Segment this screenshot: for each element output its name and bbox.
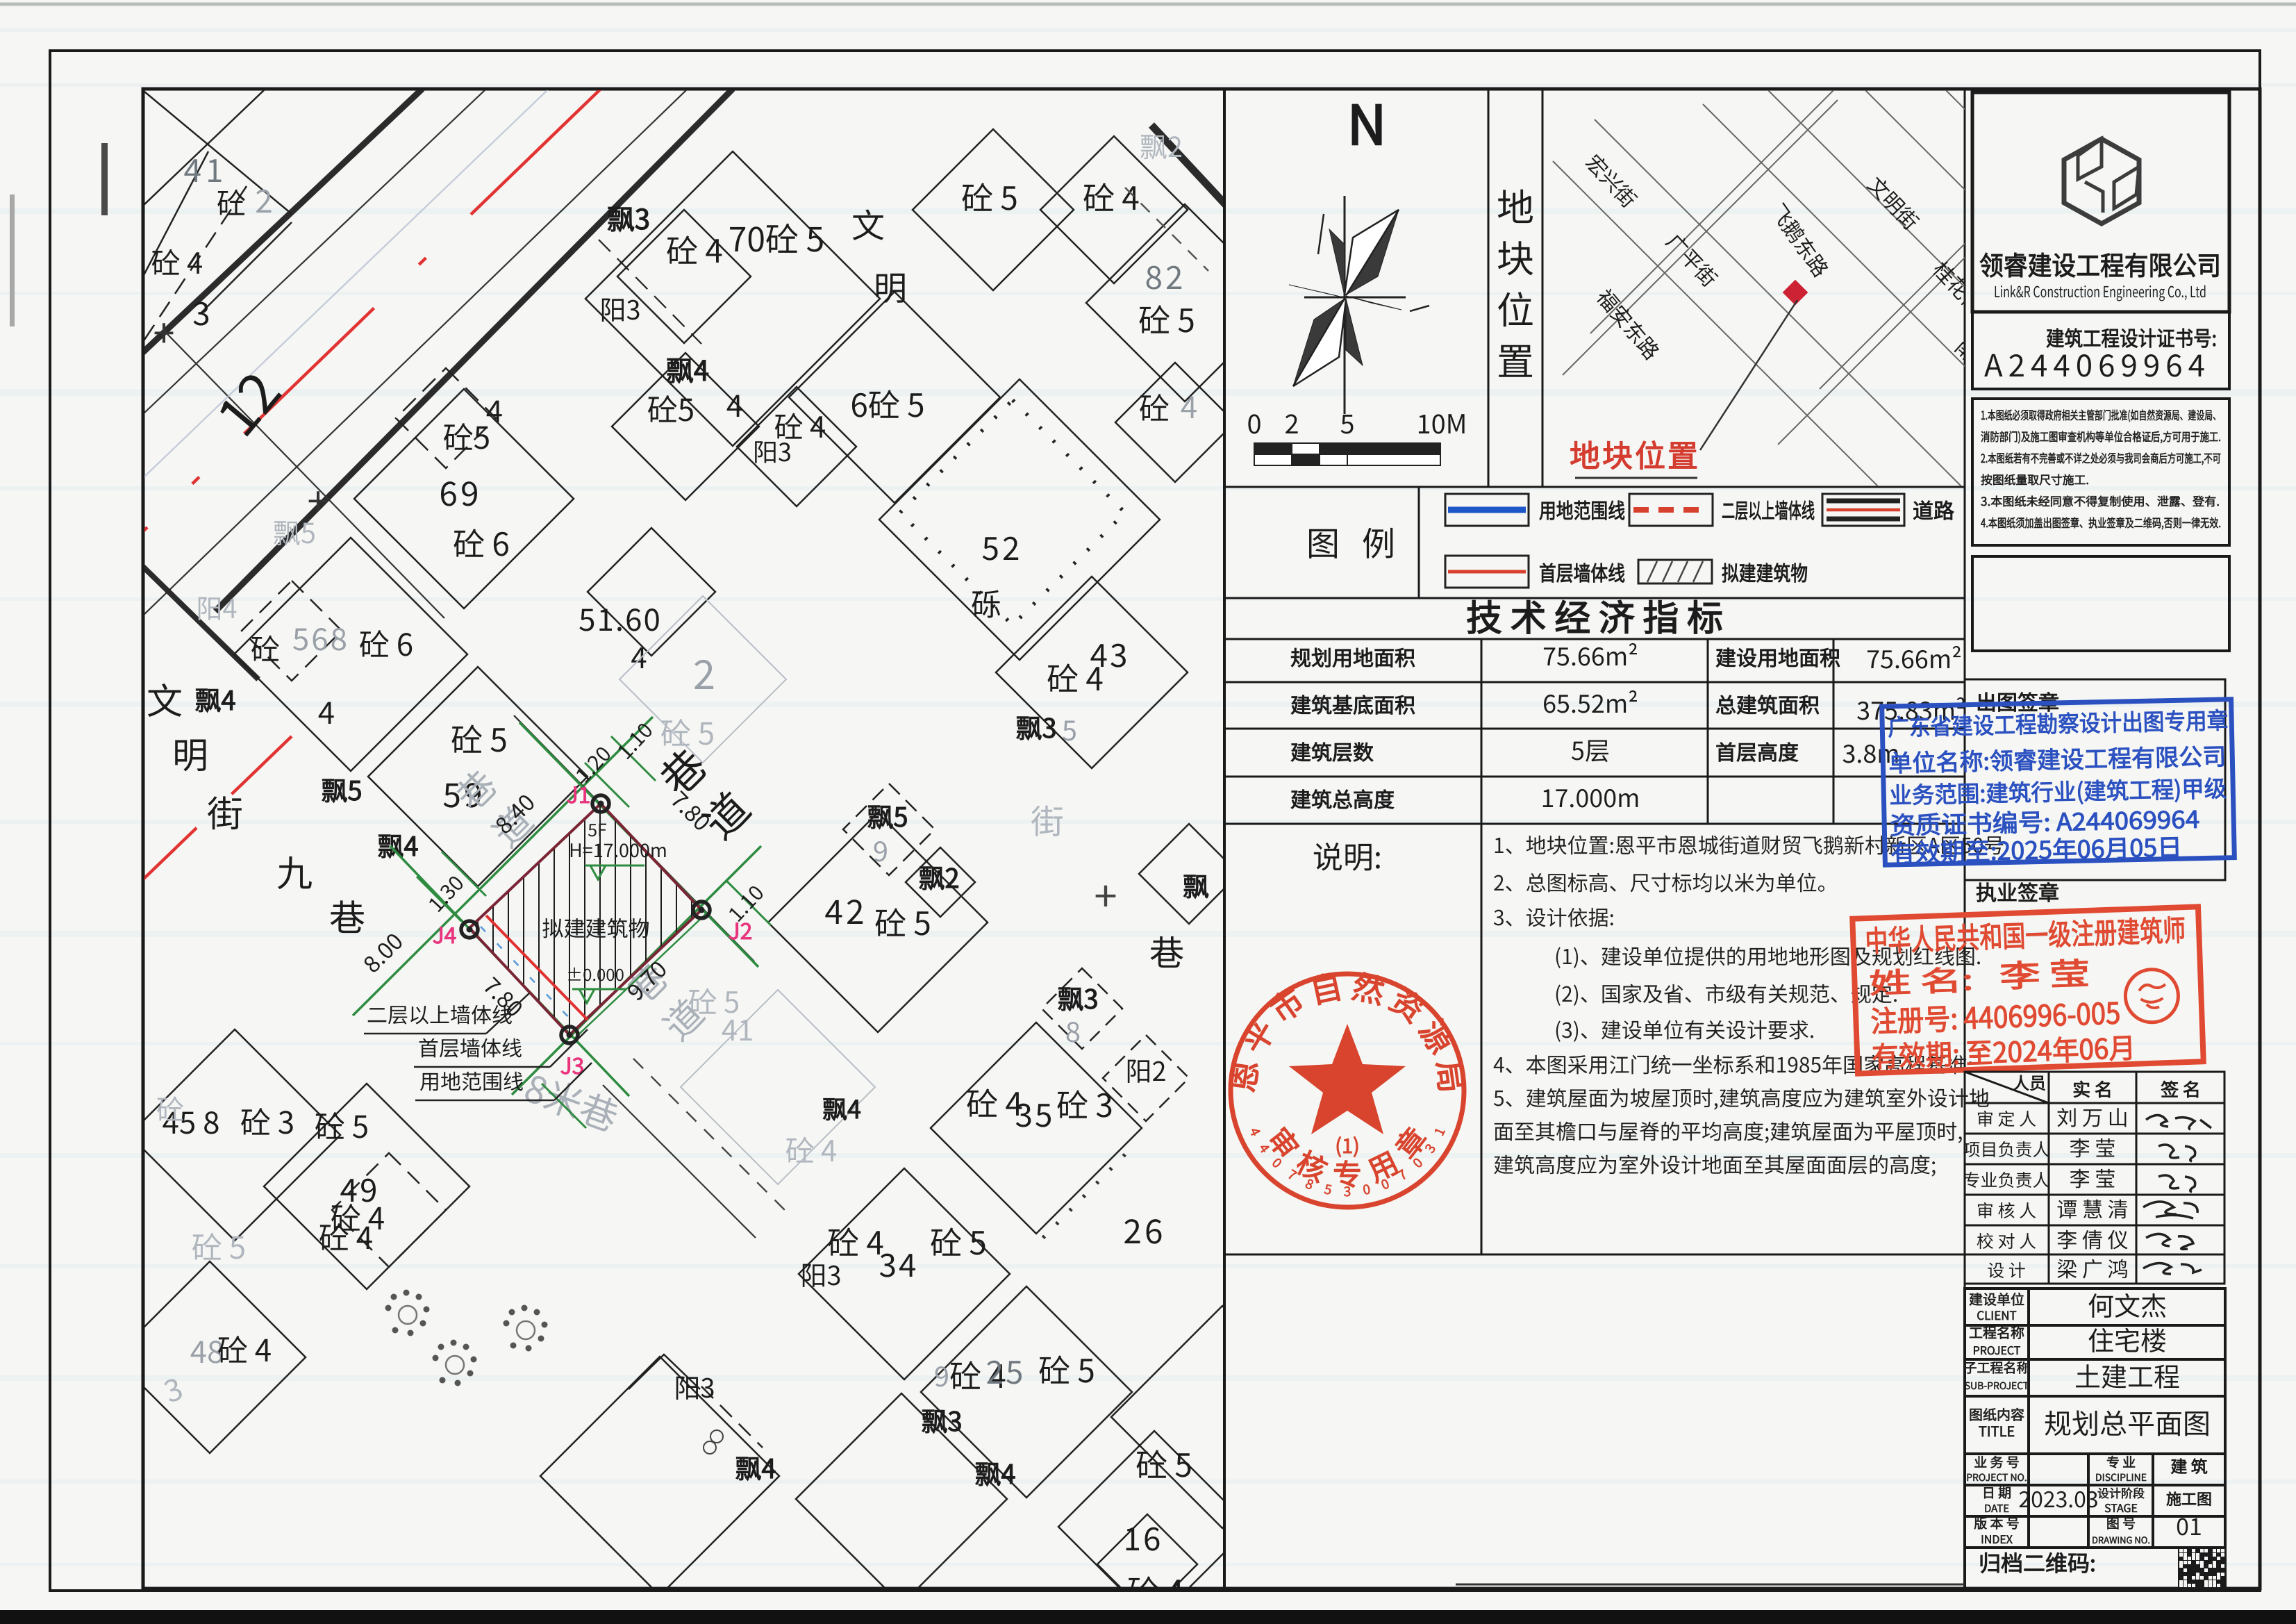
svg-text:砼: 砼 [217,181,246,223]
svg-text:2.本图纸若有不完善或不详之处必须与我司会商后方可施工,不可: 2.本图纸若有不完善或不详之处必须与我司会商后方可施工,不可 [1981,449,2221,466]
svg-text:砼 5: 砼 5 [1135,1441,1192,1486]
svg-text:8: 8 [1065,1010,1081,1050]
svg-text:规划总平面图: 规划总平面图 [2044,1402,2211,1442]
svg-text:SUB-PROJECT: SUB-PROJECT [1965,1379,2029,1393]
svg-text:51.60: 51.60 [579,595,662,640]
svg-text:飘2: 飘2 [918,857,959,895]
svg-text:26: 26 [1123,1204,1165,1253]
svg-text:广东省建设工程勘察设计出图专用章: 广东省建设工程勘察设计出图专用章 [1888,702,2229,743]
svg-text:砼 5: 砼 5 [192,1223,246,1268]
svg-text:置: 置 [1497,331,1534,386]
svg-text:65.52m²: 65.52m² [1542,684,1638,720]
svg-text:人员: 人员 [2013,1070,2046,1094]
svg-text:审 核 人: 审 核 人 [1977,1198,2036,1223]
svg-text:砼 4: 砼 4 [319,1213,373,1258]
svg-text:16: 16 [1124,1514,1163,1560]
svg-text:业 务 号: 业 务 号 [1974,1452,2019,1471]
svg-text:4: 4 [1181,383,1197,427]
svg-text:建设用地面积: 建设用地面积 [1715,641,1840,672]
svg-text:面至其檐口与屋脊的平均高度;建筑屋面为平屋顶时,: 面至其檐口与屋脊的平均高度;建筑屋面为平屋顶时, [1493,1115,1963,1145]
svg-text:砼 5: 砼 5 [660,709,715,754]
svg-text:4: 4 [318,688,335,733]
svg-text:Link&R Construction Engineerin: Link&R Construction Engineering Co., Ltd [1994,280,2206,302]
svg-text:N: N [1347,83,1386,160]
svg-text:砼 4: 砼 4 [785,1128,838,1170]
svg-text:(3)、建设单位有关设计要求.: (3)、建设单位有关设计要求. [1554,1013,1815,1044]
svg-text:82: 82 [1145,253,1186,299]
svg-text:42: 42 [824,885,867,934]
svg-text:巷: 巷 [1149,926,1184,976]
svg-text:砼 5: 砼 5 [1138,296,1195,342]
svg-text:领睿建设工程有限公司: 领睿建设工程有限公司 [1979,245,2221,283]
svg-text:飘5: 飘5 [867,796,908,834]
svg-text:建筑层数: 建筑层数 [1290,736,1374,766]
svg-text:首层墙体线: 首层墙体线 [1539,556,1625,587]
svg-text:3: 3 [1344,1182,1351,1200]
svg-text:DISCIPLINE: DISCIPLINE [2095,1470,2147,1484]
svg-text:块: 块 [1497,229,1534,283]
svg-text:砼 5: 砼 5 [930,1218,987,1264]
svg-text:首层高度: 首层高度 [1715,736,1799,766]
svg-text:2023.03: 2023.03 [2018,1482,2098,1514]
svg-text:砼 4: 砼 4 [151,240,203,283]
svg-text:0: 0 [1247,403,1261,441]
svg-text:说明:: 说明: [1313,833,1382,877]
svg-text:飘4: 飘4 [822,1090,861,1126]
svg-text:工程名称: 工程名称 [1969,1322,2024,1342]
svg-text:砾: 砾 [971,580,1001,624]
svg-text:街: 街 [1031,795,1064,843]
svg-text:飘3: 飘3 [1015,707,1056,745]
svg-text:版 本 号: 版 本 号 [1974,1514,2019,1532]
svg-text:住宅楼: 住宅楼 [2088,1320,2167,1358]
svg-text:建筑基底面积: 建筑基底面积 [1290,688,1415,719]
svg-text:CLIENT: CLIENT [1977,1306,2016,1323]
svg-text:建筑总高度: 建筑总高度 [1290,783,1395,813]
svg-text:飘4: 飘4 [194,679,235,718]
svg-text:6砼 5: 6砼 5 [850,381,924,426]
svg-text:巷: 巷 [329,889,365,941]
svg-text:砼 5: 砼 5 [451,715,508,761]
svg-text:校 对 人: 校 对 人 [1977,1228,2036,1253]
svg-text:街: 街 [207,785,243,837]
svg-text:±0.000: ±0.000 [566,961,624,986]
svg-text:局: 局 [1427,1057,1477,1095]
svg-text:41: 41 [722,1007,754,1050]
svg-text:谭 慧 清: 谭 慧 清 [2056,1193,2128,1223]
svg-text:17.000m: 17.000m [1541,779,1640,815]
svg-text:砼 5: 砼 5 [961,174,1018,219]
svg-text:地: 地 [1497,177,1534,232]
svg-text:技 术 经 济 指 标: 技 术 经 济 指 标 [1466,589,1723,641]
svg-text:用地范围线: 用地范围线 [419,1065,524,1095]
svg-text:归档二维码:: 归档二维码: [1979,1546,2096,1578]
svg-text:日 期: 日 期 [1982,1483,2011,1502]
svg-text:实 名: 实 名 [2072,1076,2113,1102]
svg-text:有效期至:2025年06月05日: 有效期至:2025年06月05日 [1890,828,2183,870]
svg-text:施工图: 施工图 [2166,1487,2212,1509]
svg-text:TITLE: TITLE [1979,1420,2015,1441]
svg-text:J4: J4 [433,918,457,950]
svg-text:3: 3 [192,289,210,335]
svg-text:设 计: 设 计 [1987,1257,2026,1282]
svg-text:9: 9 [934,1354,949,1395]
svg-text:PROJECT: PROJECT [1973,1341,2021,1358]
svg-text:4.本图纸须加盖出图签章、执业签章及二维码,否则一律无效.: 4.本图纸须加盖出图签章、执业签章及二维码,否则一律无效. [1981,513,2221,531]
svg-text:用地范围线: 用地范围线 [1539,494,1625,524]
svg-text:3、设计依据:: 3、设计依据: [1493,901,1615,931]
svg-text:恩: 恩 [1217,1057,1267,1095]
svg-text:34: 34 [879,1241,919,1286]
svg-text:总建筑面积: 总建筑面积 [1715,688,1820,719]
svg-text:砼: 砼 [1139,384,1170,429]
svg-text:二层以上墙体线: 二层以上墙体线 [1722,494,1815,524]
svg-text:专 业: 专 业 [2106,1452,2136,1471]
svg-text:明: 明 [172,727,208,779]
svg-text:飘5: 飘5 [273,511,316,552]
svg-text:执业签章: 执业签章 [1976,876,2059,906]
svg-text:建 筑: 建 筑 [2170,1453,2207,1477]
svg-text:2: 2 [255,176,272,222]
svg-text:4: 4 [631,635,647,677]
svg-text:43: 43 [1090,631,1130,677]
svg-text:砼: 砼 [251,627,280,669]
svg-text:子工程名称: 子工程名称 [1963,1358,2029,1377]
svg-text:4: 4 [726,381,743,426]
svg-text:2: 2 [1284,403,1299,441]
svg-text:李 莹: 李 莹 [1999,949,2090,996]
svg-text:阳3: 阳3 [800,1254,841,1293]
svg-text:(2)、国家及省、市级有关规范、规定.: (2)、国家及省、市级有关规范、规定. [1554,977,1898,1008]
svg-text:阳4: 阳4 [196,588,237,626]
svg-text:砼 5: 砼 5 [1038,1346,1095,1392]
svg-text:图: 图 [1306,517,1340,565]
svg-text:拟建建筑物: 拟建建筑物 [542,911,650,943]
svg-text:位: 位 [1497,280,1534,335]
svg-text:首层墙体线: 首层墙体线 [418,1031,522,1062]
svg-text:审 定 人: 审 定 人 [1977,1106,2036,1131]
svg-text:(1): (1) [1335,1130,1360,1159]
svg-text:文: 文 [147,672,183,724]
svg-text:52: 52 [982,524,1023,570]
svg-text:何文杰: 何文杰 [2088,1285,2167,1323]
svg-text:INDEX: INDEX [1981,1530,2013,1547]
svg-text:1.本图纸必须取得政府相关主管部门批准(如自然资源局、建设局: 1.本图纸必须取得政府相关主管部门批准(如自然资源局、建设局、 [1981,406,2221,423]
svg-text:按图纸量取尺寸施工.: 按图纸量取尺寸施工. [1981,470,2089,488]
svg-text:规划用地面积: 规划用地面积 [1290,641,1415,672]
svg-text:砼5: 砼5 [443,413,490,458]
svg-text:5层: 5层 [1571,731,1610,768]
svg-text:25: 25 [986,1348,1026,1393]
svg-text:阳3: 阳3 [674,1367,715,1405]
svg-text:砼5: 砼5 [647,386,694,430]
svg-text:砼: 砼 [156,1088,184,1128]
svg-text:刘 万 山: 刘 万 山 [2056,1101,2128,1132]
svg-text:姓 名:: 姓 名: [1868,958,1974,1002]
svg-text:二层以上墙体线: 二层以上墙体线 [367,998,513,1029]
svg-text:土建工程: 土建工程 [2074,1356,2180,1394]
svg-text:3.本图纸未经同意不得复制使用、泄露、登有.: 3.本图纸未经同意不得复制使用、泄露、登有. [1981,492,2220,509]
svg-text:签 名: 签 名 [2161,1076,2201,1102]
svg-text:李 莹: 李 莹 [2070,1132,2116,1162]
svg-text:砼 4: 砼 4 [217,1326,272,1370]
svg-text:飘: 飘 [1183,865,1209,904]
svg-text:图 号: 图 号 [2106,1514,2136,1532]
svg-text:2: 2 [693,643,715,701]
svg-text:阳3: 阳3 [599,289,640,327]
svg-text:5、建筑屋面为坡屋顶时,建筑高度应为建筑室外设计地: 5、建筑屋面为坡屋顶时,建筑高度应为建筑室外设计地 [1493,1082,1990,1112]
svg-text:75.66m²: 75.66m² [1542,637,1638,673]
svg-text:DRAWING NO.: DRAWING NO. [2092,1533,2150,1546]
svg-text:69: 69 [439,467,481,515]
svg-text:+: + [1094,863,1117,924]
svg-text:9: 9 [873,829,888,870]
svg-text:建筑高度应为室外设计地面至其屋面面层的高度;: 建筑高度应为室外设计地面至其屋面面层的高度; [1493,1148,1936,1179]
svg-text:飘5: 飘5 [321,770,362,808]
svg-text:砼 4: 砼 4 [1083,174,1140,219]
svg-text:砼 3: 砼 3 [240,1098,294,1143]
svg-text:明: 明 [874,261,907,310]
svg-text:2、总图标高、尺寸标均以米为单位。: 2、总图标高、尺寸标均以米为单位。 [1493,866,1838,897]
svg-text:01: 01 [2176,1508,2202,1542]
svg-text:5: 5 [1340,403,1354,441]
svg-text:李 莹: 李 莹 [2070,1162,2116,1193]
svg-text:文: 文 [851,199,885,247]
svg-text:35: 35 [1015,1091,1055,1136]
svg-text:专业负责人: 专业负责人 [1963,1167,2049,1192]
svg-text:A244069964: A244069964 [1984,341,2211,386]
svg-text:砼 5: 砼 5 [874,899,931,945]
svg-text:砼 4: 砼 4 [666,226,723,272]
svg-text:例: 例 [1362,517,1395,565]
svg-text:拟建建筑物: 拟建建筑物 [1722,556,1808,587]
svg-text:568: 568 [292,615,349,659]
svg-text:飘3: 飘3 [607,197,650,238]
svg-text:砼 6: 砼 6 [359,620,413,665]
svg-text:飘2: 飘2 [1140,125,1183,165]
svg-text:阳2: 阳2 [1125,1050,1166,1088]
svg-text:道路: 道路 [1913,494,1955,524]
svg-text:75.66m²: 75.66m² [1866,640,1962,676]
svg-text:H=17.000m: H=17.000m [569,836,667,863]
svg-text:梁 广 鸿: 梁 广 鸿 [2056,1252,2128,1283]
svg-text:项目负责人: 项目负责人 [1963,1136,2049,1161]
svg-text:阳3: 阳3 [753,433,792,469]
svg-text:李 倩 仪: 李 倩 仪 [2056,1223,2128,1254]
svg-text:70砼 5: 70砼 5 [729,213,824,261]
svg-text:九: 九 [276,845,313,897]
svg-text:10M: 10M [1417,403,1467,441]
svg-text:砼 3: 砼 3 [1056,1081,1113,1127]
svg-text:砼 6: 砼 6 [453,520,510,565]
svg-text:5: 5 [1062,709,1077,749]
svg-text:砼 5: 砼 5 [315,1102,369,1147]
svg-text:飘4: 飘4 [377,825,418,863]
svg-text:消防部门)及施工图审查机构等单位合格证后,方可用于施工.: 消防部门)及施工图审查机构等单位合格证后,方可用于施工. [1981,427,2221,445]
svg-text:地块位置: 地块位置 [1570,431,1700,476]
